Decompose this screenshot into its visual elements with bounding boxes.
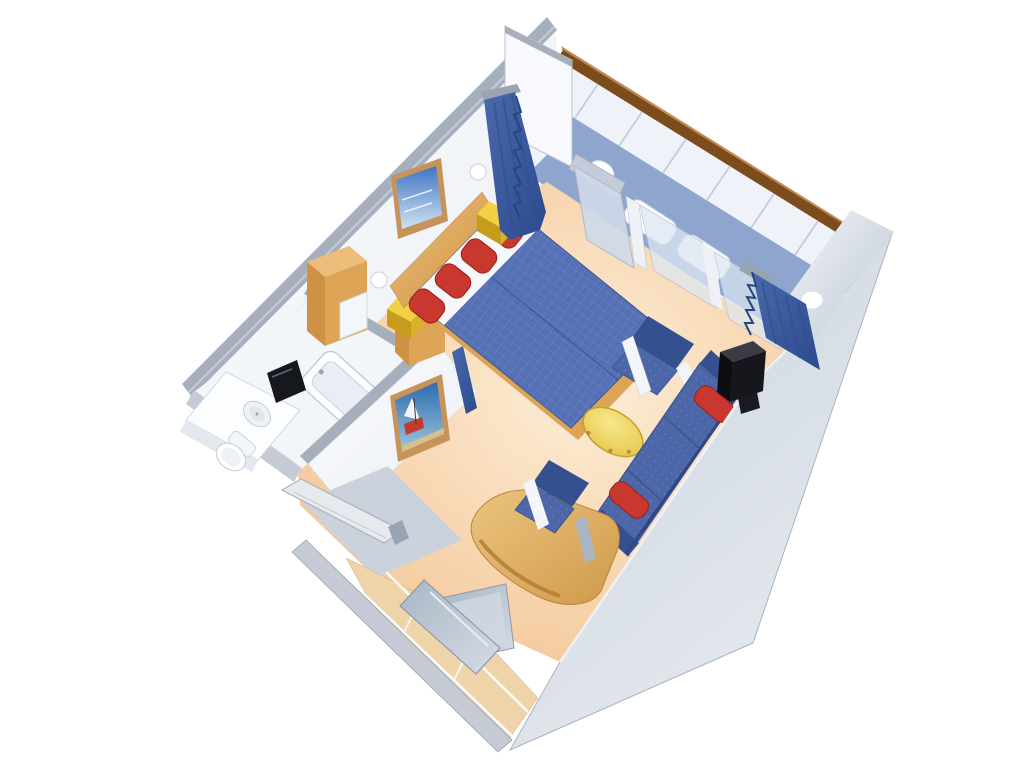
wall-sconce bbox=[470, 164, 486, 180]
stateroom-floorplan-page bbox=[0, 0, 1024, 768]
wood-cabinet bbox=[307, 246, 367, 346]
stateroom-3d-floorplan bbox=[0, 0, 1024, 768]
wall-sconce bbox=[371, 272, 387, 288]
